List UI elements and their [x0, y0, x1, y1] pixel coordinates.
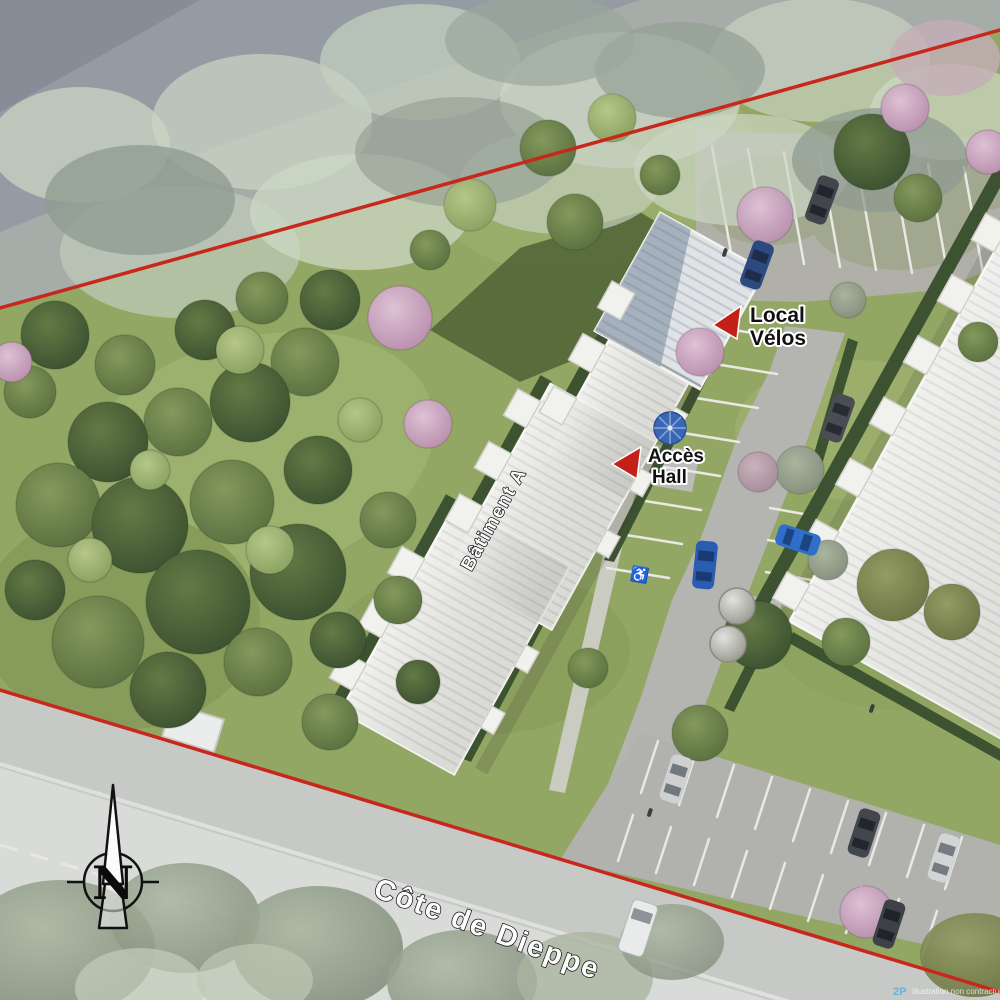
accessible-parking-icon: ♿	[629, 564, 651, 585]
pink-tree	[737, 187, 793, 243]
tree	[410, 230, 450, 270]
tree	[5, 560, 65, 620]
tree	[52, 596, 144, 688]
site-plan-canvas: ♿	[0, 0, 1000, 1000]
tree	[894, 174, 942, 222]
label-acces-hall-line1: Accès	[648, 446, 704, 467]
tree	[302, 694, 358, 750]
tree	[640, 155, 680, 195]
pink-tree	[676, 328, 724, 376]
tree	[360, 492, 416, 548]
tree	[857, 549, 929, 621]
tree	[216, 326, 264, 374]
site-plan: ♿	[0, 0, 1000, 1000]
tree	[95, 335, 155, 395]
tree	[300, 270, 360, 330]
watermark-logo: 2P	[893, 986, 906, 998]
parasol-icon	[654, 412, 686, 444]
tree	[924, 584, 980, 640]
pink-tree	[738, 452, 778, 492]
tree	[822, 618, 870, 666]
tree	[224, 628, 292, 696]
tree	[16, 463, 100, 547]
tree	[547, 194, 603, 250]
tree	[374, 576, 422, 624]
tree	[568, 648, 608, 688]
tree	[246, 526, 294, 574]
tree	[830, 282, 866, 318]
tree	[130, 450, 170, 490]
label-local-velos: Local Vélos	[750, 304, 811, 350]
pink-tree	[404, 400, 452, 448]
tree	[520, 120, 576, 176]
tree	[958, 322, 998, 362]
watermark-text: Illustration non contractuelle	[912, 987, 1000, 996]
pink-tree	[0, 342, 32, 382]
tree	[144, 388, 212, 456]
compass-north-label: N	[92, 856, 134, 910]
label-local-velos-line1: Local	[750, 304, 805, 327]
tree	[210, 362, 290, 442]
tree	[68, 538, 112, 582]
tree	[396, 660, 440, 704]
label-acces-hall-line2: Hall	[652, 467, 687, 488]
tree	[672, 705, 728, 761]
tree	[338, 398, 382, 442]
tree	[130, 652, 206, 728]
tree	[310, 612, 366, 668]
label-local-velos-line2: Vélos	[750, 327, 806, 350]
tree	[776, 446, 824, 494]
pink-tree	[881, 84, 929, 132]
tree	[236, 272, 288, 324]
tree	[444, 179, 496, 231]
pink-tree	[368, 286, 432, 350]
tree	[284, 436, 352, 504]
